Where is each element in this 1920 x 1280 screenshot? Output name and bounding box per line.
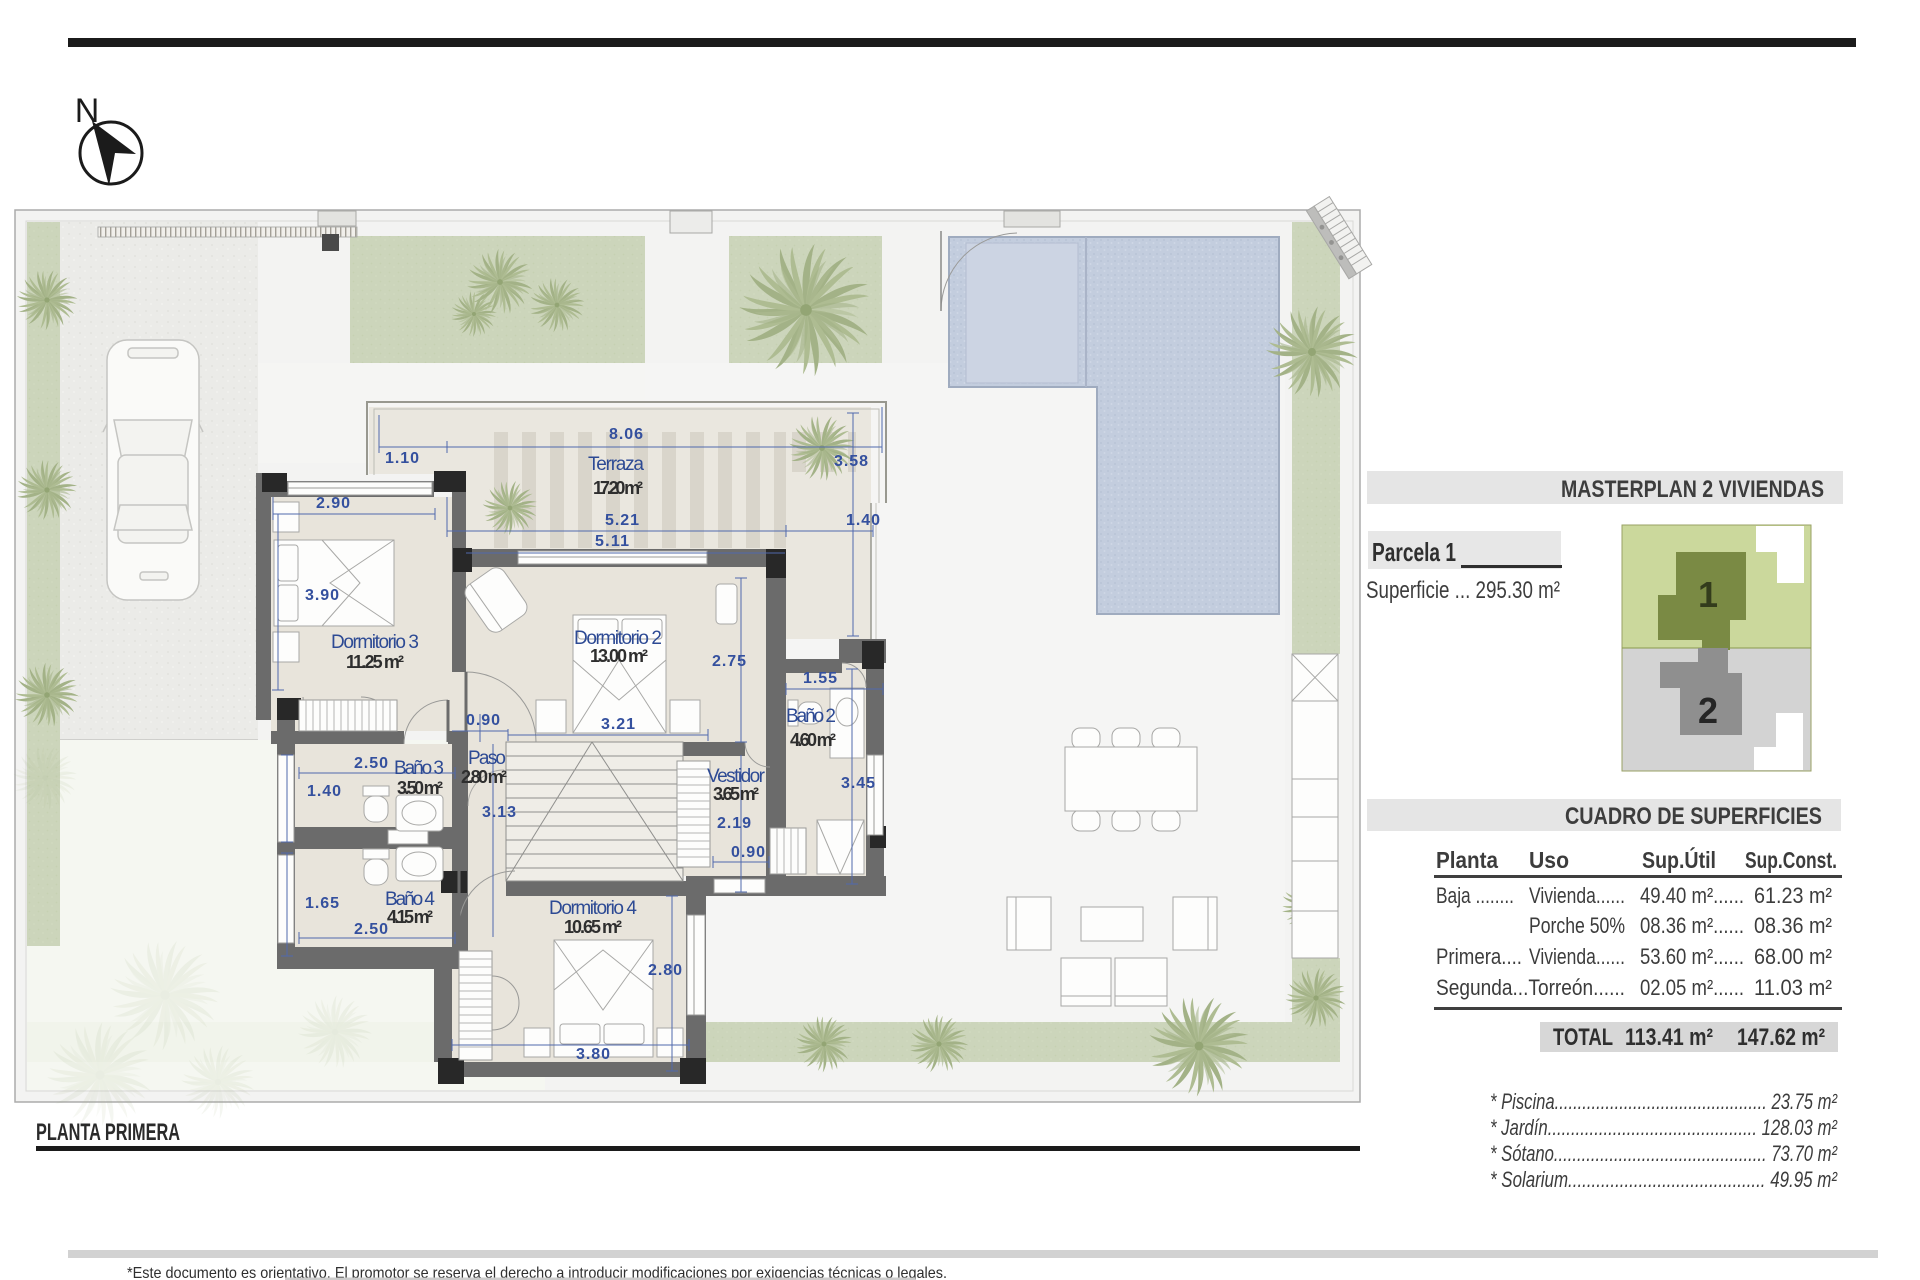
- svg-text:4.60 m²: 4.60 m²: [790, 730, 836, 750]
- svg-text:Baño 2: Baño 2: [786, 706, 836, 727]
- svg-text:08.36 m²: 08.36 m²: [1754, 913, 1832, 938]
- svg-text:Paso: Paso: [468, 748, 506, 769]
- svg-text:2.50: 2.50: [354, 755, 388, 772]
- svg-text:2.80: 2.80: [648, 962, 682, 979]
- svg-text:2.50: 2.50: [354, 921, 388, 938]
- svg-text:8.06: 8.06: [609, 426, 643, 443]
- svg-text:2.19: 2.19: [717, 815, 751, 832]
- svg-text:3.50 m²: 3.50 m²: [397, 778, 443, 798]
- svg-text:147.62 m²: 147.62 m²: [1737, 1024, 1825, 1051]
- svg-text:Sup.Útil: Sup.Útil: [1642, 846, 1716, 873]
- svg-text:Dormitorio 3: Dormitorio 3: [331, 632, 419, 653]
- svg-text:3.80: 3.80: [576, 1046, 610, 1063]
- svg-text:02.05 m²......: 02.05 m²......: [1640, 975, 1744, 1000]
- svg-text:TOTAL: TOTAL: [1553, 1024, 1613, 1051]
- svg-text:3.90: 3.90: [305, 587, 339, 604]
- svg-text:Sup.Const.: Sup.Const.: [1745, 847, 1837, 873]
- svg-text:11.03 m²: 11.03 m²: [1754, 975, 1832, 1000]
- svg-text:1.55: 1.55: [803, 670, 837, 687]
- svg-text:Baño 3: Baño 3: [394, 758, 444, 779]
- svg-text:3.65 m²: 3.65 m²: [713, 784, 759, 804]
- svg-text:10.65 m²: 10.65 m²: [564, 917, 622, 937]
- svg-text:Planta: Planta: [1436, 847, 1498, 873]
- svg-text:3.13: 3.13: [482, 804, 516, 821]
- svg-text:1.65: 1.65: [305, 895, 339, 912]
- svg-text:68.00 m²: 68.00 m²: [1754, 944, 1832, 969]
- svg-text:49.40 m²......: 49.40 m²......: [1640, 883, 1744, 908]
- svg-text:Uso: Uso: [1529, 847, 1569, 873]
- svg-text:3.21: 3.21: [601, 716, 635, 733]
- svg-text:13.00 m²: 13.00 m²: [590, 646, 648, 666]
- svg-text:2.80 m²: 2.80 m²: [461, 767, 507, 787]
- svg-text:Baja ........: Baja ........: [1436, 883, 1514, 908]
- svg-text:61.23 m²: 61.23 m²: [1754, 883, 1832, 908]
- svg-text:CUADRO DE SUPERFICIES: CUADRO DE SUPERFICIES: [1565, 803, 1822, 830]
- svg-text:1: 1: [1698, 574, 1718, 615]
- svg-text:Terraza: Terraza: [588, 454, 644, 475]
- svg-text:1.40: 1.40: [307, 783, 341, 800]
- svg-text:Parcela 1: Parcela 1: [1372, 537, 1456, 567]
- svg-text:PLANTA PRIMERA: PLANTA PRIMERA: [36, 1119, 180, 1146]
- svg-text:3.58: 3.58: [834, 453, 868, 470]
- svg-text:Vivienda......: Vivienda......: [1529, 944, 1625, 969]
- svg-text:Dormitorio 4: Dormitorio 4: [549, 898, 637, 919]
- svg-text:1.10: 1.10: [385, 450, 419, 467]
- svg-text:* Solarium....................: * Solarium..............................…: [1490, 1167, 1838, 1192]
- svg-text:1.40: 1.40: [846, 512, 880, 529]
- svg-text:2.75: 2.75: [712, 653, 746, 670]
- svg-text:113.41 m²: 113.41 m²: [1625, 1024, 1713, 1051]
- svg-text:5.11: 5.11: [595, 533, 629, 550]
- svg-text:11.25 m²: 11.25 m²: [346, 652, 404, 672]
- svg-text:0.90: 0.90: [731, 844, 765, 861]
- svg-text:5.21: 5.21: [605, 512, 639, 529]
- svg-text:17.20 m²: 17.20 m²: [593, 478, 643, 498]
- svg-text:4.15 m²: 4.15 m²: [387, 907, 433, 927]
- svg-text:2.90: 2.90: [316, 495, 350, 512]
- svg-text:3.45: 3.45: [841, 775, 875, 792]
- svg-text:* Piscina.....................: * Piscina...............................…: [1490, 1089, 1837, 1114]
- svg-text:08.36 m²......: 08.36 m²......: [1640, 913, 1744, 938]
- svg-text:Segunda...Torreón......: Segunda...Torreón......: [1436, 975, 1625, 1000]
- svg-text:Primera....: Primera....: [1436, 944, 1522, 969]
- svg-text:MASTERPLAN 2 VIVIENDAS: MASTERPLAN 2 VIVIENDAS: [1561, 476, 1824, 503]
- svg-text:Superficie ... 295.30 m²: Superficie ... 295.30 m²: [1366, 577, 1560, 604]
- svg-text:2: 2: [1698, 690, 1718, 731]
- svg-text:* Sótano......................: * Sótano................................…: [1490, 1141, 1838, 1166]
- svg-text:53.60 m²......: 53.60 m²......: [1640, 944, 1744, 969]
- svg-text:0.90: 0.90: [466, 712, 500, 729]
- svg-text:Porche 50%: Porche 50%: [1529, 913, 1625, 938]
- svg-text:Vivienda......: Vivienda......: [1529, 883, 1625, 908]
- svg-text:* Jardín......................: * Jardín................................…: [1490, 1115, 1838, 1140]
